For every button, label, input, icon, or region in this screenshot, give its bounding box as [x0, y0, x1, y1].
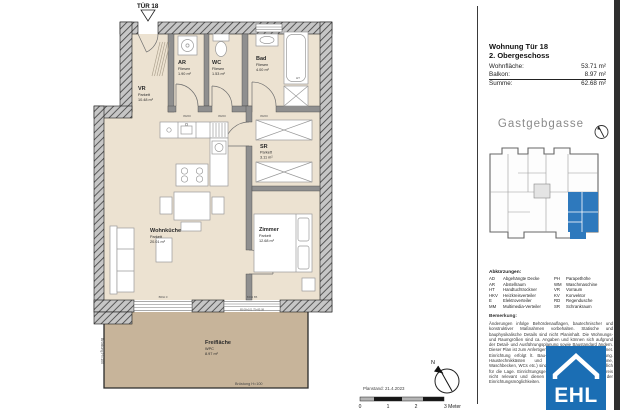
svg-text:10.48 m²: 10.48 m² — [138, 98, 154, 102]
svg-text:1.53 m²: 1.53 m² — [212, 72, 226, 76]
door-size-tag: 80/20 — [183, 114, 191, 118]
unit-info-block: Wohnung Tür 18 2. Obergeschoss Wohnfläch… — [489, 42, 606, 89]
svg-text:12.68 m²: 12.68 m² — [259, 239, 275, 243]
stove-icon — [176, 164, 208, 186]
svg-text:Parkett: Parkett — [138, 93, 151, 97]
unit-title: Wohnung Tür 18 — [489, 42, 606, 51]
door-size-tag: 80/20 — [260, 114, 268, 118]
area-row: Wohnfläche: 53.71 m² — [489, 63, 606, 71]
svg-text:Bad: Bad — [256, 56, 266, 62]
panel-divider — [477, 6, 478, 404]
svg-text:20.01 m²: 20.01 m² — [150, 240, 166, 244]
svg-text:Parkett: Parkett — [259, 234, 272, 238]
stair-core — [534, 184, 550, 198]
ehl-logo: EHL — [546, 346, 606, 410]
ehl-logo-text: EHL — [554, 384, 598, 407]
scale-bar: 0 1 2 3 Meter — [359, 397, 462, 410]
svg-text:Wohnküche: Wohnküche — [150, 228, 181, 234]
page-edge — [614, 0, 620, 410]
svg-text:2: 2 — [415, 404, 418, 410]
svg-text:1.90 m²: 1.90 m² — [178, 72, 192, 76]
svg-text:1: 1 — [387, 404, 390, 410]
svg-text:WC: WC — [212, 60, 221, 66]
svg-text:0: 0 — [359, 404, 362, 410]
dining-table — [174, 192, 210, 220]
washing-machine-icon — [178, 36, 197, 55]
svg-text:3.11 m²: 3.11 m² — [260, 156, 273, 160]
svg-text:Fliesen: Fliesen — [212, 67, 224, 71]
svg-text:N: N — [431, 360, 435, 366]
kitchen-counter — [160, 122, 228, 138]
floorplan-sheet: TÜR 18 — [0, 0, 620, 410]
svg-text:Fliesen: Fliesen — [256, 63, 268, 67]
svg-text:8.97 m²: 8.97 m² — [205, 352, 219, 356]
sofa — [110, 226, 117, 294]
svg-text:Freifläche: Freifläche — [205, 340, 231, 346]
area-row: Balkon: 8.97 m² — [489, 71, 606, 79]
svg-text:VR: VR — [138, 86, 146, 92]
svg-text:Parkett: Parkett — [260, 151, 273, 155]
window-tag: BRH 0 — [159, 295, 168, 299]
compass-mini-icon — [592, 122, 610, 140]
svg-text:Parkett: Parkett — [150, 235, 163, 239]
highlighted-balcony — [570, 232, 586, 239]
washbasin — [256, 34, 278, 46]
remark-title: Bemerkung: — [489, 314, 613, 320]
toilet-icon — [213, 34, 229, 41]
nightstand — [302, 278, 315, 291]
mini-floorplan — [484, 140, 606, 244]
highlighted-unit — [568, 192, 598, 239]
window-tag: BRH 85 — [247, 295, 258, 299]
svg-text:Fliesen: Fliesen — [178, 67, 190, 71]
svg-text:Zimmer: Zimmer — [259, 227, 280, 233]
entrance-arrow-icon — [141, 10, 155, 21]
svg-text:3 Meter: 3 Meter — [444, 404, 461, 410]
street-name: Gastgebgasse — [486, 118, 596, 130]
entrance-door-label: TÜR 18 — [137, 3, 159, 10]
abbreviations-block: Abkürzungen: ADAbgehängte Decke PHParape… — [489, 270, 615, 310]
unit-floor: 2. Obergeschoss — [489, 51, 606, 60]
apartment-floorplan: TÜR 18 — [0, 0, 478, 410]
parapet-note-vertical: Brüstung H=100 — [100, 338, 104, 364]
svg-text:WPC: WPC — [205, 347, 214, 351]
door-size-tag: 80/20 — [218, 114, 226, 118]
area-row-sum: Summe: 62.68 m² — [489, 79, 606, 88]
svg-text:AR: AR — [178, 60, 186, 66]
dimension-chain: 85.08+101.75+85.08 — [240, 308, 265, 312]
svg-text:4.00 m²: 4.00 m² — [256, 68, 270, 72]
compass-icon: N — [431, 360, 459, 393]
parapet-note: Brüstung H=100 — [235, 382, 263, 386]
plan-date: Planstand: 21.4.2023 — [363, 386, 405, 391]
ht-tag: HT — [296, 76, 300, 80]
svg-text:SR: SR — [260, 144, 268, 150]
